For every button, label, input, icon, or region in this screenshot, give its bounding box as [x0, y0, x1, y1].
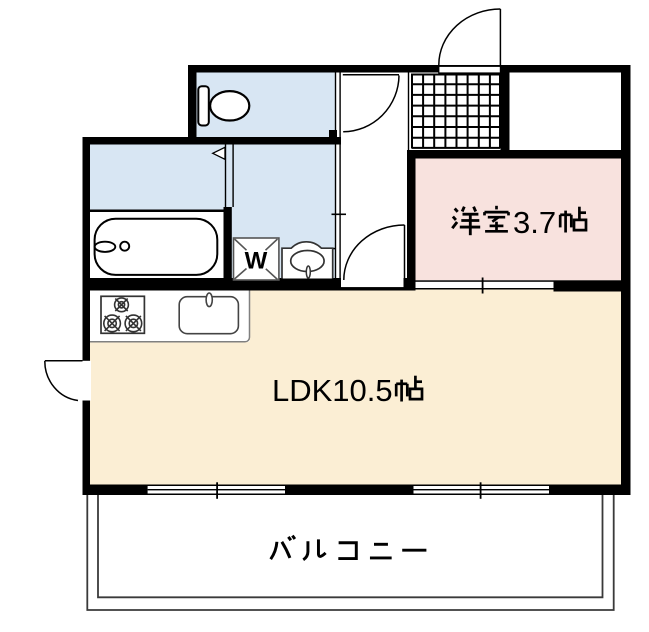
svg-text:3.7: 3.7	[513, 205, 556, 240]
svg-text:W: W	[245, 248, 268, 275]
svg-text:LDK10.5: LDK10.5	[272, 373, 393, 408]
